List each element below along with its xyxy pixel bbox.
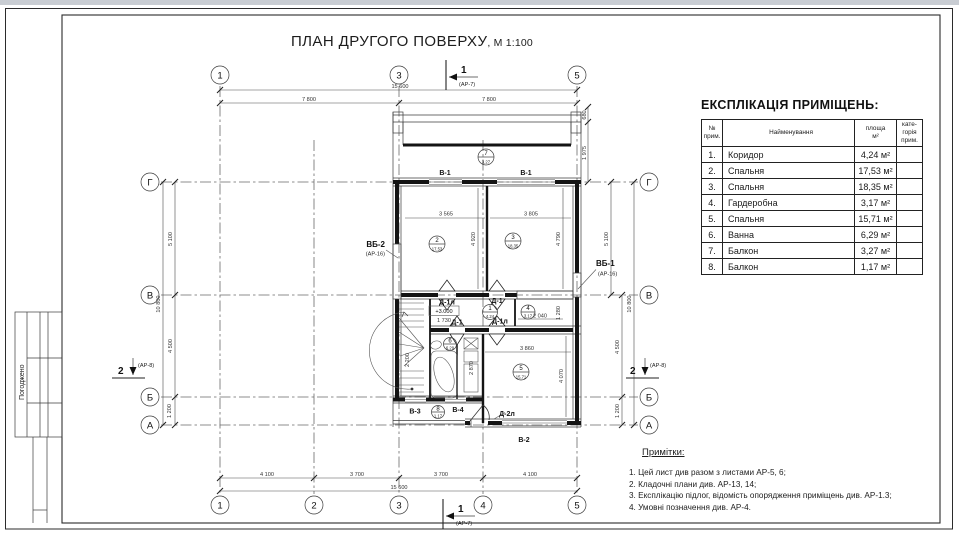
window-label: В-2 [518,437,529,444]
cell-name: Балкон [723,259,855,275]
svg-text:1: 1 [217,501,222,512]
door-label: Д-1 [491,298,502,305]
svg-text:4: 4 [526,306,530,312]
cell-num: 4. [702,195,723,211]
svg-text:3 700: 3 700 [434,472,448,478]
axis-bubble: Б [640,388,658,406]
col-header-cat: кате- горія прим. [897,120,923,147]
door-label: Д-1л [439,300,455,307]
dimension-lines [160,87,637,494]
bathtub-basin [430,355,458,395]
svg-text:1 280: 1 280 [556,306,562,320]
axis-bubble: А [640,416,658,434]
axis-bubble: 1 [211,66,229,84]
svg-text:10 800: 10 800 [156,295,162,312]
axis-bubble: 5 [568,496,586,514]
page-title: ПЛАН ДРУГОГО ПОВЕРХУ, М 1:100 [291,33,533,50]
window-label: В-3 [409,409,420,416]
vent-ref: (АР-16) [598,272,617,278]
svg-text:2 870: 2 870 [469,361,475,375]
explication-table: № прим. Найменування площа м² кате- горі… [701,119,923,275]
cell-num: 3. [702,179,723,195]
svg-text:2: 2 [311,501,316,512]
svg-text:1 730: 1 730 [437,318,451,324]
svg-text:17,53: 17,53 [432,247,443,252]
svg-text:4 500: 4 500 [615,340,621,354]
svg-text:3: 3 [396,501,401,512]
svg-text:1 200: 1 200 [167,404,173,418]
explication: ЕКСПЛІКАЦІЯ ПРИМІЩЕНЬ: № прим. Найменува… [701,98,917,275]
svg-text:7: 7 [484,151,488,157]
cell-name: Балкон [723,243,855,259]
svg-text:2 200: 2 200 [405,353,411,367]
section-markers: 1 (АР-7) 1 (АР-7) 2 (АР-8) 2 (АР-8) [112,60,666,529]
svg-text:1: 1 [461,65,467,76]
dim-ticks [160,87,637,494]
svg-text:7 800: 7 800 [302,97,316,103]
svg-text:15 600: 15 600 [390,485,407,491]
cell-name: Ванна [723,227,855,243]
vent-wall-hatch [517,291,573,299]
axis-bubble: Б [141,388,159,406]
svg-text:5 100: 5 100 [168,232,174,246]
col-header-name: Найменування [723,120,855,147]
table-row: 6.Ванна6,29 м² [702,227,923,243]
cell-num: 1. [702,147,723,163]
svg-text:А: А [147,421,154,432]
cell-num: 8. [702,259,723,275]
vent-label: ВБ-1 [596,259,615,268]
svg-text:3: 3 [396,71,401,82]
room-marker: 515,71 [513,364,529,380]
svg-text:18,35: 18,35 [508,244,519,249]
svg-text:1 200: 1 200 [615,404,621,418]
svg-text:В: В [147,291,153,302]
svg-text:(АР-7): (АР-7) [459,82,475,88]
note-item: 2. Кладочні плани див. АР-13, 14; [629,479,939,491]
axis-bubble: 2 [305,496,323,514]
cell-name: Гардеробна [723,195,855,211]
svg-text:(АР-8): (АР-8) [650,363,666,369]
svg-text:4 070: 4 070 [559,369,565,383]
notes-title: Примітки: [642,447,939,458]
window-label: В-1 [439,170,450,177]
cell-num: 5. [702,211,723,227]
cell-category [897,163,923,179]
title-scale: , М 1:100 [487,37,533,49]
cell-category [897,147,923,163]
svg-text:3 700: 3 700 [350,472,364,478]
note-item: 4. Умовні позначення див. АР-4. [629,502,939,514]
cell-num: 6. [702,227,723,243]
svg-text:3,27: 3,27 [482,160,491,165]
svg-text:6: 6 [448,339,452,345]
svg-text:1: 1 [458,504,464,515]
room-marker: 14,24 [483,305,498,320]
svg-text:4 920: 4 920 [471,232,477,246]
cell-area: 15,71 м² [855,211,897,227]
cell-category [897,195,923,211]
svg-text:4 100: 4 100 [260,472,274,478]
notes: Примітки: 1. Цей лист див разом з листам… [629,447,939,513]
window-v1-left [429,180,462,185]
table-row: 1.Коридор4,24 м² [702,147,923,163]
svg-text:2: 2 [435,238,439,244]
svg-text:15 600: 15 600 [391,84,408,90]
svg-text:2 040: 2 040 [533,314,547,320]
vent-label: ВБ-2 [366,240,385,249]
room-marker: 66,29 [444,338,457,351]
washer-cross [464,338,478,349]
note-item: 3. Експлікацію підлог, відомість опорядж… [629,490,939,502]
table-header-row: № прим. Найменування площа м² кате- горі… [702,120,923,147]
cell-name: Коридор [723,147,855,163]
cell-area: 3,27 м² [855,243,897,259]
svg-text:(АР-7): (АР-7) [456,521,472,527]
cell-name: Спальня [723,211,855,227]
svg-text:В: В [646,291,652,302]
col-header-num: № прим. [702,120,723,147]
svg-text:3 565: 3 565 [439,212,453,218]
elevation-value: +3.000 [435,309,452,315]
svg-text:1: 1 [488,306,492,312]
door-label: Д-1л [492,319,508,326]
table-row: 5.Спальня15,71 м² [702,211,923,227]
room-marker: 73,27 [478,149,494,165]
svg-text:2: 2 [118,366,124,377]
svg-text:5: 5 [574,501,579,512]
boiler [464,351,478,362]
svg-text:6,29: 6,29 [446,346,455,351]
cell-area: 1,17 м² [855,259,897,275]
elevation-mark: +3.000 [429,306,459,316]
axis-bubble: 1 [211,496,229,514]
stamp-block: Погоджено [15,312,62,523]
table-row: 2.Спальня17,53 м² [702,163,923,179]
cell-area: 3,17 м² [855,195,897,211]
cell-num: 2. [702,163,723,179]
window-label: В-4 [452,407,463,414]
window-label: В-1 [520,170,531,177]
svg-text:8: 8 [436,407,440,413]
svg-text:Б: Б [646,393,652,404]
svg-text:4 100: 4 100 [523,472,537,478]
svg-text:4 790: 4 790 [556,232,562,246]
cell-area: 18,35 м² [855,179,897,195]
door-label: Д-1 [451,320,462,327]
cell-num: 7. [702,243,723,259]
cell-name: Спальня [723,179,855,195]
cell-name: Спальня [723,163,855,179]
svg-text:(АР-8): (АР-8) [138,363,154,369]
cell-category [897,211,923,227]
room-marker: 318,35 [505,233,521,249]
svg-text:680: 680 [582,110,588,119]
cell-area: 17,53 м² [855,163,897,179]
col-header-area: площа м² [855,120,897,147]
axis-bubble: Г [640,173,658,191]
svg-text:Б: Б [147,393,153,404]
svg-text:А: А [646,421,653,432]
svg-text:1: 1 [217,71,222,82]
svg-text:1,17: 1,17 [434,414,443,419]
svg-text:3 805: 3 805 [524,212,538,218]
axis-bubble: 5 [568,66,586,84]
section-marker-right: 2 (АР-8) [626,358,666,378]
window-v3 [405,397,426,402]
svg-text:3 860: 3 860 [520,346,534,352]
axis-bubble: 4 [474,496,492,514]
svg-text:1 975: 1 975 [582,146,588,160]
walls [393,145,581,424]
explication-title: ЕКСПЛІКАЦІЯ ПРИМІЩЕНЬ: [701,98,917,112]
svg-text:5: 5 [574,71,579,82]
svg-text:5 100: 5 100 [604,232,610,246]
axis-bubble: А [141,416,159,434]
cell-category [897,179,923,195]
svg-text:3,17: 3,17 [524,314,533,319]
room-marker: 81,17 [432,406,445,419]
table-row: 8.Балкон1,17 м² [702,259,923,275]
svg-text:Г: Г [147,178,152,189]
grid-axes [161,86,638,494]
svg-text:4 500: 4 500 [168,339,174,353]
svg-text:Г: Г [646,178,651,189]
section-marker-top: 1 (АР-7) [446,60,478,90]
table-row: 3.Спальня18,35 м² [702,179,923,195]
vent-block-vb2 [393,244,401,299]
axis-bubble: 3 [390,496,408,514]
cell-category [897,243,923,259]
table-row: 4.Гардеробна3,17 м² [702,195,923,211]
cell-area: 6,29 м² [855,227,897,243]
axis-bubble: 3 [390,66,408,84]
scanned-drawing-page: Погоджено [0,0,959,536]
svg-text:2: 2 [630,366,636,377]
svg-text:15,71: 15,71 [516,375,527,380]
toilet [430,340,443,351]
section-marker-bottom: 1 (АР-7) [443,499,475,529]
svg-text:7 800: 7 800 [482,97,496,103]
door-d2l [470,405,489,421]
window-v1-right [497,180,555,185]
room-marker: 217,53 [429,236,445,252]
stamp-label: Погоджено [19,364,26,400]
title-text: ПЛАН ДРУГОГО ПОВЕРХУ [291,33,487,50]
svg-text:10 800: 10 800 [627,295,633,312]
cell-category [897,227,923,243]
section-marker-left: 2 (АР-8) [112,358,154,378]
svg-text:4: 4 [480,501,485,512]
svg-text:5: 5 [519,366,523,372]
cell-area: 4,24 м² [855,147,897,163]
svg-text:3: 3 [511,235,515,241]
vent-ref: (АР-16) [366,252,385,258]
note-item: 1. Цей лист див разом з листами АР-5, 6; [629,467,939,479]
cell-category [897,259,923,275]
table-row: 7.Балкон3,27 м² [702,243,923,259]
axis-bubble: Г [141,173,159,191]
axis-bubble: В [640,286,658,304]
